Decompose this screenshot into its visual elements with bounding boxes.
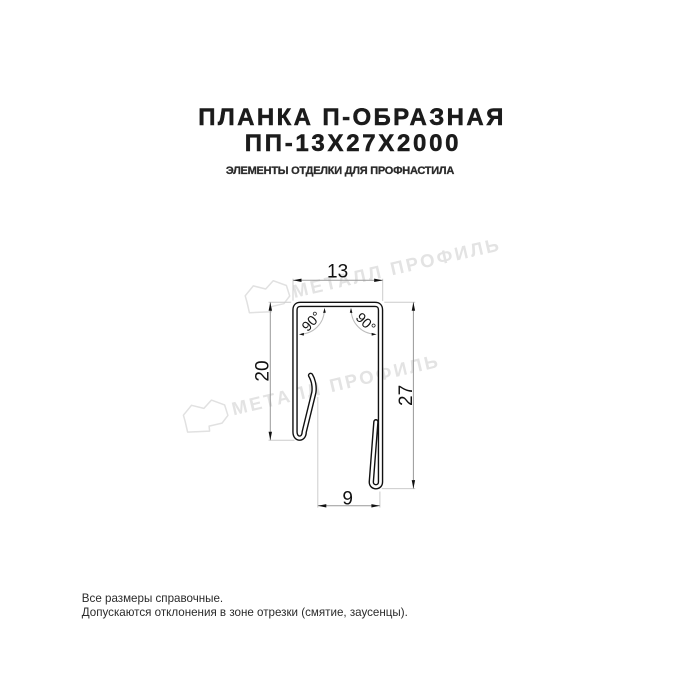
svg-text:90°: 90° (298, 308, 324, 334)
svg-text:МЕТАЛЛ ПРОФИЛЬ: МЕТАЛЛ ПРОФИЛЬ (230, 350, 443, 420)
svg-text:13: 13 (327, 261, 348, 282)
svg-text:МЕТАЛЛ ПРОФИЛЬ: МЕТАЛЛ ПРОФИЛЬ (290, 233, 503, 301)
svg-text:90°: 90° (353, 309, 379, 335)
svg-text:9: 9 (342, 489, 353, 510)
svg-text:27: 27 (396, 385, 417, 406)
svg-text:20: 20 (253, 360, 274, 381)
